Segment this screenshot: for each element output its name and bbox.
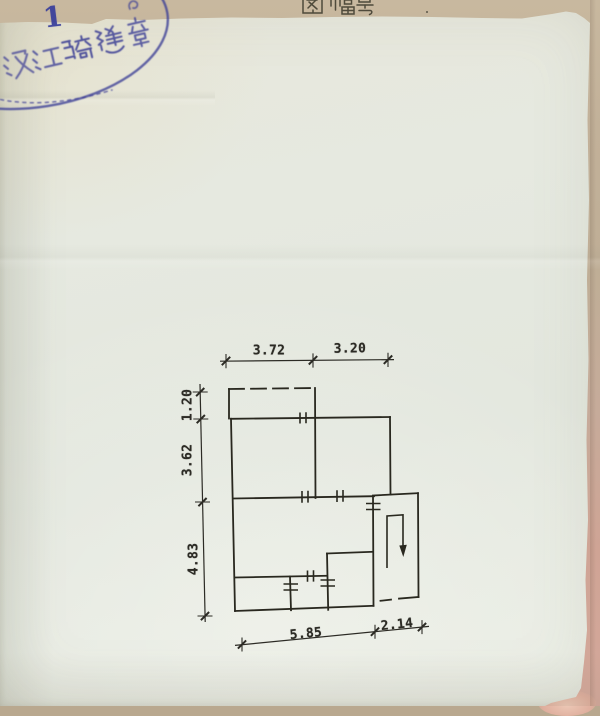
stair-down-arrow	[387, 515, 407, 568]
stamp-ellipse-border	[0, 0, 179, 127]
dim-label-left-lower: 4.83	[187, 543, 202, 576]
stair-door-threshold	[381, 600, 392, 601]
glyph-tu	[303, 0, 322, 13]
stamp-dotted-arc	[0, 90, 112, 103]
small-room-top-wall	[327, 552, 373, 554]
glyph-fu	[331, 0, 354, 14]
left-outer-wall	[231, 419, 235, 611]
stair-room-right-wall	[418, 493, 419, 597]
stamp-character	[31, 46, 62, 71]
lower-partition-right	[327, 554, 328, 610]
upper-right-room-wall	[390, 417, 391, 495]
scanned-sheet: 图幅号 汉江骑缝章	[0, 0, 600, 706]
upper-cross-wall	[231, 417, 390, 419]
middle-cross-wall	[234, 496, 374, 498]
floor-plan	[229, 388, 419, 611]
stamp-character	[95, 25, 124, 56]
balcony-dashed-outline	[229, 388, 315, 389]
dim-label-left-upper: 1.20	[181, 389, 196, 422]
lower-partition-left	[290, 577, 291, 611]
dim-label-bottom-left: 5.85	[289, 625, 323, 643]
dim-label-left-middle: 3.62	[181, 444, 196, 477]
glyph-hao	[357, 0, 373, 15]
paper-speck	[426, 11, 428, 13]
stamp-curl-mark	[129, 1, 137, 9]
right-outer-wall	[373, 496, 374, 606]
dim-label-top-right: 3.20	[334, 341, 367, 357]
seal-stamp	[0, 0, 179, 127]
stamp-character	[62, 35, 93, 63]
stair-room-top-wall	[373, 493, 418, 495]
window-symbols	[284, 412, 381, 590]
stamp-character	[126, 16, 151, 49]
partition-wall-vertical	[315, 388, 316, 498]
page-number: 1	[41, 0, 64, 35]
bottom-outer-wall	[235, 606, 374, 611]
stair-room-bottom-wall	[399, 597, 419, 599]
scan-artwork	[0, 0, 600, 706]
dim-label-top-left: 3.72	[253, 344, 286, 359]
header-label-glyphs	[303, 0, 428, 15]
stamp-character	[2, 50, 34, 80]
